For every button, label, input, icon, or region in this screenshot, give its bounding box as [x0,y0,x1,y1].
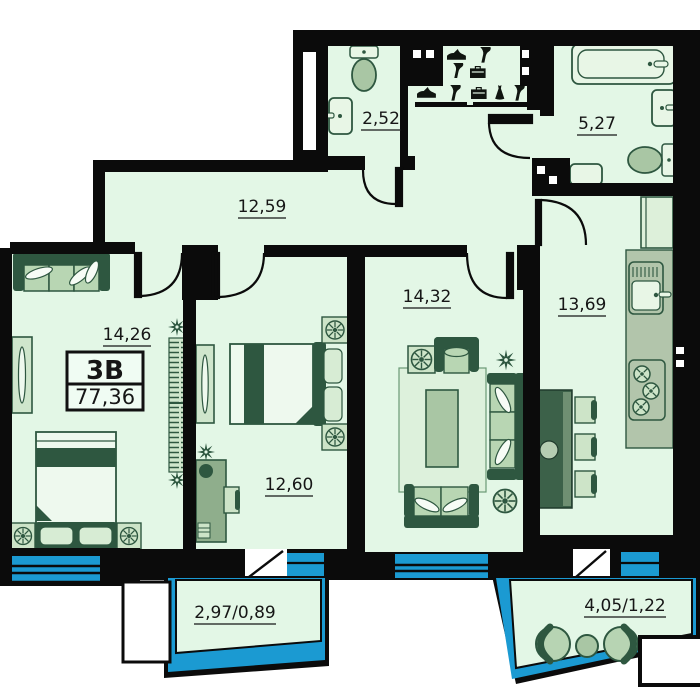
unit-type-label: 3B [86,356,124,386]
shelf-unit-icon [169,338,184,472]
sofa-icon [487,373,528,480]
coffee-table-icon [426,390,458,467]
sink-icon [326,98,352,134]
wall [0,248,12,586]
wall [93,160,328,172]
wall [673,30,700,556]
fridge-icon [641,197,673,248]
bed-icon [230,342,342,426]
chair-icon [575,434,597,460]
kitchen-area-label: 13,69 [558,295,607,315]
loveseat-icon [404,484,479,528]
wc-area-label: 2,52 [362,109,400,129]
wardrobe-icon [196,345,214,423]
balcony-chair-icon [536,627,570,661]
toilet-icon [350,46,378,91]
nightstand-icon [117,523,141,549]
washing-machine-icon [570,164,602,185]
plant-icon [496,350,517,371]
balcony-left [123,576,329,678]
chair-icon [575,471,597,497]
wall [523,535,700,580]
dining-table-icon [538,390,572,508]
wall [93,160,105,246]
balcony-door-bedroom-middle [245,549,287,580]
nightstand-icon [322,317,348,343]
wall [347,245,365,557]
balcony-right [492,576,700,685]
plant-icon [197,443,215,461]
wall [532,183,675,196]
chair-icon [575,397,597,423]
bathroom-area-label: 5,27 [578,114,616,134]
floor-plan: 12,59 2,52 5,27 14,26 12,60 14,32 13,69 … [0,0,700,700]
bedroom-left-area-label: 14,26 [103,325,152,345]
window-living-room [395,554,488,578]
hallway-area-label: 12,59 [238,197,287,217]
stove-icon [629,360,665,420]
window-kitchen [621,552,659,578]
balcony-right-area-label: 4,05/1,22 [584,596,665,616]
floor-plan-svg: 12,59 2,52 5,27 14,26 12,60 14,32 13,69 … [0,0,700,700]
sofa-icon [13,253,110,291]
balcony-chair-icon [604,627,638,661]
wall [540,30,554,116]
wall [527,84,540,110]
wall [523,245,540,565]
balcony-table-icon [576,635,598,657]
armchair-icon [434,337,479,373]
wall [10,242,135,254]
living-room-area-label: 14,32 [403,287,452,307]
balcony-left-area-label: 2,97/0,89 [194,603,275,623]
room-hallway-floor [100,168,540,247]
wall [293,30,700,46]
neighbor-balcony [123,582,170,662]
unit-type-box: 3B 77,36 [67,352,143,410]
wardrobe-icon [12,337,32,413]
bathtub-icon [572,44,676,84]
balcony-door-kitchen [573,549,610,580]
bed-icon [35,432,117,549]
wall [183,245,196,557]
nightstand-icon [11,523,35,549]
wall [264,245,467,257]
nightstand-icon [322,424,348,450]
unit-total-area: 77,36 [75,385,135,409]
window-bedroom-left [12,556,100,582]
round-table-icon [494,490,517,513]
side-table-icon [408,346,435,373]
neighbor-balcony [640,637,700,685]
bedroom-middle-area-label: 12,60 [265,475,314,495]
toilet-icon [628,144,676,176]
sink-icon [652,90,676,126]
window-bedroom-middle [287,553,324,578]
wall [400,46,443,86]
